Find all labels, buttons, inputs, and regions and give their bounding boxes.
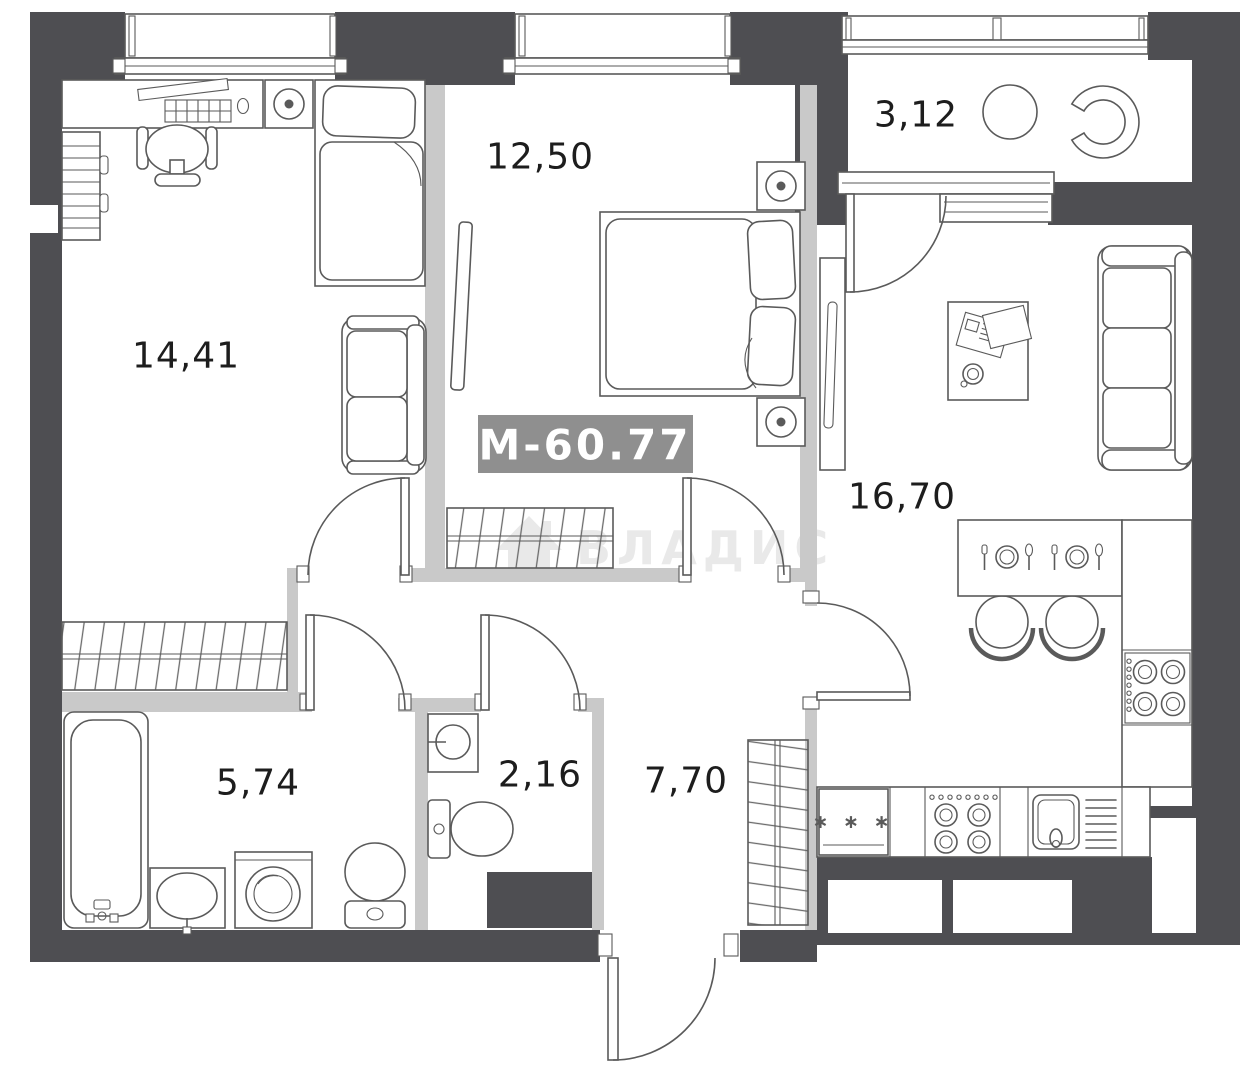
- room-label-hallway: 7,70: [644, 761, 728, 802]
- balcony-chair-icon: [1072, 86, 1139, 158]
- window-bay-room14: [113, 14, 347, 74]
- room-label-bathroom: 5,74: [216, 763, 300, 804]
- room14-furniture: [62, 79, 426, 474]
- window-bay-room12: [503, 14, 740, 74]
- bottom-window-2: [953, 880, 1072, 933]
- door-bathroom: [300, 615, 411, 710]
- office-chair-icon: [137, 125, 217, 186]
- corner-step: [1152, 818, 1196, 933]
- wall-notch: [30, 205, 58, 233]
- tv-unit-icon: [820, 258, 845, 470]
- dining-table-icon: [958, 520, 1122, 659]
- wc-sink-icon: [428, 714, 478, 772]
- balcony-glazing: [842, 16, 1148, 54]
- area-badge-text: М-60.77: [478, 421, 691, 470]
- room-label-12: 12,50: [486, 137, 594, 178]
- toilet-icon-bathroom: [345, 843, 405, 928]
- bookshelf-icon: [62, 132, 108, 240]
- floor-plan-svg: ВЛАДИС: [0, 0, 1254, 1075]
- wardrobe-icon-hallway: [748, 740, 808, 925]
- nightstand-icon-top: [757, 162, 805, 210]
- room-label-wc: 2,16: [498, 755, 582, 796]
- hob-icon: [1125, 653, 1190, 723]
- ventilation-shaft: [487, 872, 592, 928]
- room12-furniture: [451, 162, 805, 446]
- watermark-text: ВЛАДИС: [576, 521, 834, 575]
- wardrobe-icon-room14: [62, 622, 287, 690]
- room-label-balcony: 3,12: [874, 95, 958, 136]
- floor-plan-page: ВЛАДИС: [0, 0, 1254, 1075]
- tv-icon-bedroom: [451, 222, 473, 390]
- nightstand-icon-room14: [265, 80, 313, 128]
- washing-machine-icon: [235, 852, 312, 928]
- fridge-label: ∗ ∗ ∗: [813, 811, 894, 833]
- toilet-icon-wc: [428, 800, 513, 858]
- kitchen-counter-bottom: ∗ ∗ ∗: [813, 787, 1151, 857]
- door-kitchen: [803, 591, 910, 709]
- nightstand-icon-bottom: [757, 398, 805, 446]
- keyboard-icon: [165, 100, 231, 122]
- door-balcony: [846, 194, 946, 292]
- kitchen-counter-right: [1122, 520, 1192, 787]
- wardrobe-icon-bedroom: [447, 508, 613, 568]
- double-bed-icon: [600, 212, 800, 396]
- balcony-table-icon: [983, 85, 1037, 139]
- bottom-window-1: [828, 880, 942, 933]
- door-wc: [475, 615, 586, 710]
- door-room14: [297, 478, 412, 582]
- kitchen-living-furniture: ∗ ∗ ∗: [813, 246, 1193, 857]
- sofa-icon: [1098, 246, 1192, 470]
- coffee-table-icon: [948, 302, 1031, 400]
- single-bed-icon: [315, 80, 425, 286]
- balcony-furniture: [983, 85, 1139, 158]
- dining-chair-icon: [1046, 596, 1098, 648]
- room-label-kitchen-living: 16,70: [848, 477, 956, 518]
- bathtub-icon: [64, 712, 148, 928]
- bath-sink-icon: [150, 868, 225, 934]
- room-label-14: 14,41: [132, 336, 240, 377]
- fridge-icon: ∗ ∗ ∗: [813, 789, 894, 855]
- mouse-icon: [238, 99, 249, 114]
- loveseat-icon: [342, 316, 426, 474]
- wc-furniture: [428, 714, 592, 928]
- area-badge: М-60.77: [478, 415, 693, 473]
- dining-chair-icon: [976, 596, 1028, 648]
- bathroom-furniture: [64, 712, 405, 934]
- entrance-door: [598, 934, 738, 1060]
